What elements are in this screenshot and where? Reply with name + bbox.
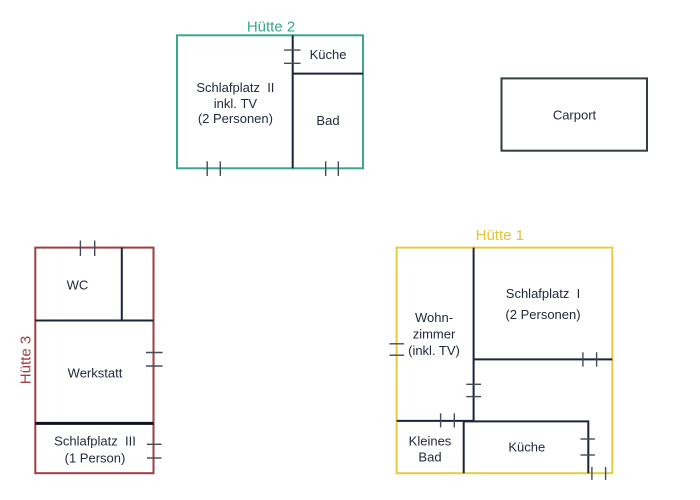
svg-text:(1 Person): (1 Person) [65,450,126,465]
svg-text:(inkl. TV): (inkl. TV) [408,343,460,358]
svg-text:Küche: Küche [508,440,545,455]
svg-text:inkl. TV: inkl. TV [214,96,258,111]
svg-text:Hütte 1: Hütte 1 [476,227,524,244]
svg-text:Bad: Bad [316,113,339,128]
svg-text:Schlafplatz III: Schlafplatz III [54,434,136,449]
svg-text:Wohn-: Wohn- [415,310,453,325]
svg-text:Hütte 2: Hütte 2 [247,19,295,36]
svg-text:WC: WC [67,278,89,293]
svg-text:Hütte 3: Hütte 3 [18,336,35,384]
svg-text:(2 Personen): (2 Personen) [198,111,273,126]
svg-text:zimmer: zimmer [413,327,456,342]
svg-text:Bad: Bad [418,450,441,465]
svg-text:(2 Personen): (2 Personen) [505,307,580,322]
svg-text:Carport: Carport [553,108,597,123]
svg-text:Schlafplatz II: Schlafplatz II [196,80,274,95]
svg-text:Schlafplatz I: Schlafplatz I [506,286,580,301]
svg-text:Kleines: Kleines [409,433,452,448]
svg-text:Werkstatt: Werkstatt [68,366,123,381]
svg-text:Küche: Küche [310,47,347,62]
